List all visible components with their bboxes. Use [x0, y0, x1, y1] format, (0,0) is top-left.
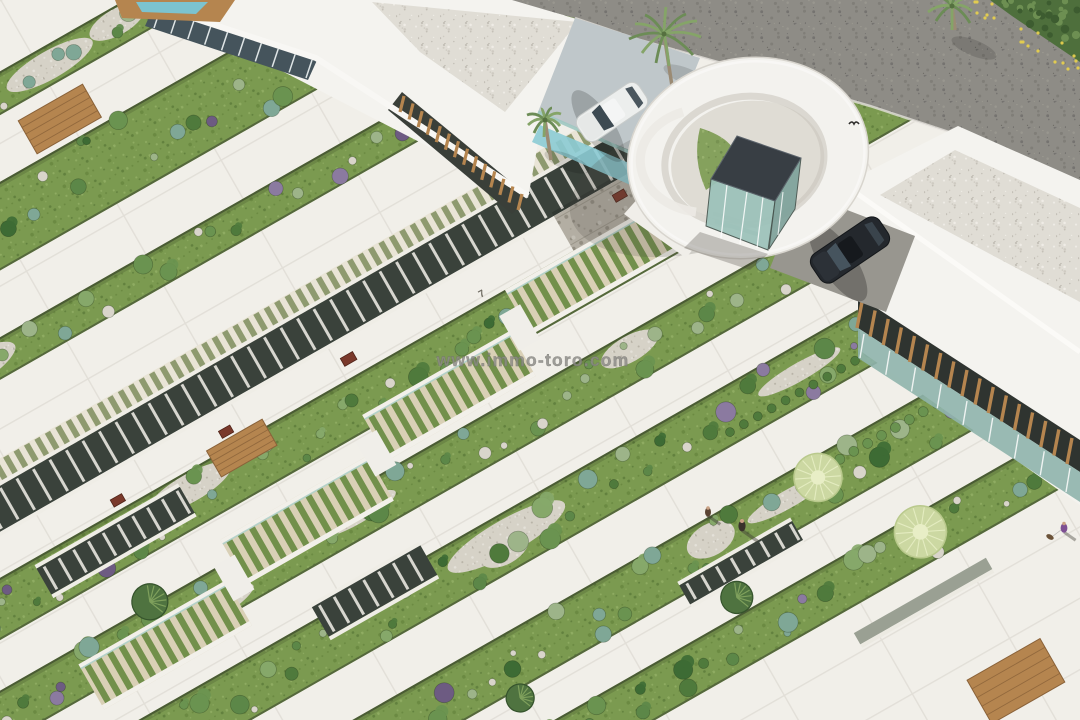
- watermark: www.immo-toro.com: [436, 350, 630, 370]
- aerial-render: 7: [0, 0, 1080, 720]
- render-viewport: 7: [0, 0, 1080, 720]
